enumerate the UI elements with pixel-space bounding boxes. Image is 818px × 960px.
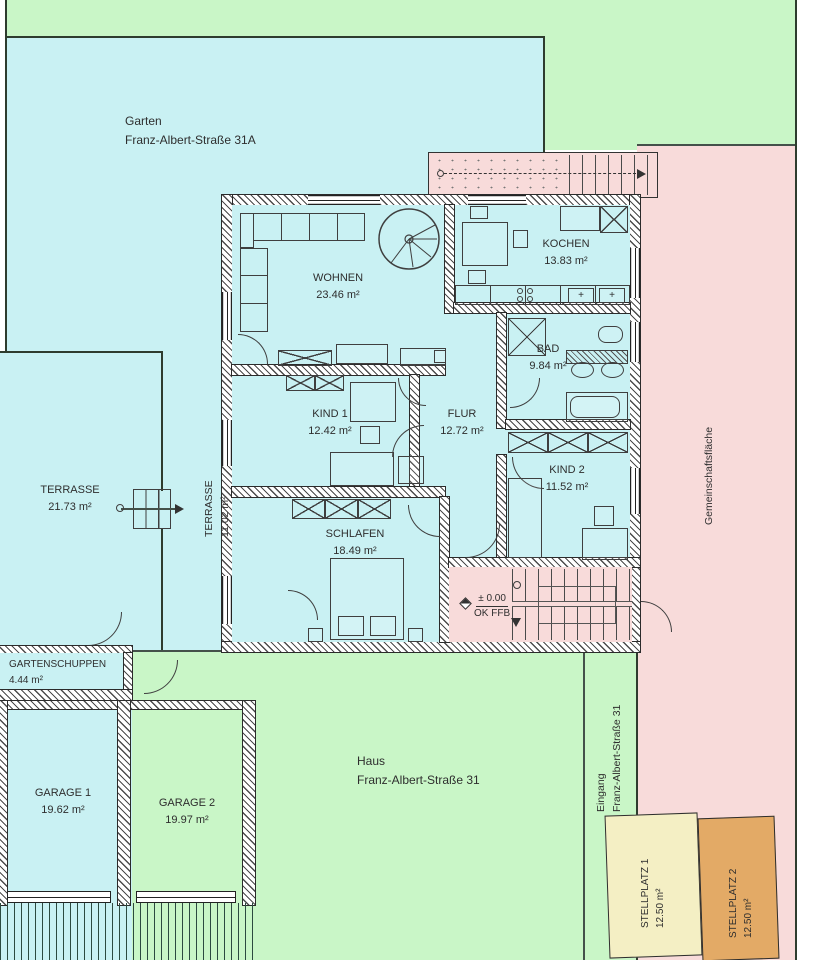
window bbox=[222, 576, 232, 624]
label-terrasse1: TERRASSE 21.73 m² bbox=[15, 482, 125, 516]
label-garten: Garten Franz-Albert-Straße 31A bbox=[125, 112, 256, 149]
boundary-line bbox=[637, 144, 795, 146]
label-garage1: GARAGE 1 19.62 m² bbox=[8, 785, 118, 819]
window bbox=[222, 292, 232, 340]
outbuilding-area: 19.97 m² bbox=[165, 814, 208, 826]
label-schlafen: SCHLAFEN 18.49 m² bbox=[300, 526, 410, 560]
wall-exterior-bottom bbox=[222, 642, 640, 652]
nightstand bbox=[308, 628, 323, 642]
level-annotation: ± 0.00 OK FFB bbox=[474, 592, 510, 620]
label-wohnen: WOHNEN 23.46 m² bbox=[283, 270, 393, 304]
room-area: 12.42 m² bbox=[308, 425, 351, 437]
level-value: ± 0.00 bbox=[476, 592, 508, 607]
window bbox=[308, 195, 380, 205]
outbuilding-name: STELLPLATZ 2 bbox=[728, 869, 739, 938]
wall-kind2-left bbox=[497, 455, 506, 567]
wall-wohnen-bottom bbox=[232, 365, 445, 375]
stove-burner bbox=[517, 288, 523, 294]
monitor bbox=[594, 506, 614, 526]
wall-garage-right bbox=[243, 701, 255, 905]
region-garten-a bbox=[5, 37, 545, 152]
room-name: KOCHEN bbox=[542, 238, 589, 250]
gemeinschaftsflaeche-text: Gemeinschaftsfläche bbox=[703, 427, 715, 525]
label-kind2: KIND 2 11.52 m² bbox=[512, 462, 622, 496]
level-reference: OK FFB bbox=[474, 608, 510, 619]
room-name: KIND 1 bbox=[312, 408, 347, 420]
terrace-stair-arrow bbox=[175, 504, 184, 514]
label-kochen: KOCHEN 13.83 m² bbox=[511, 236, 621, 270]
room-area: 18.49 m² bbox=[333, 545, 376, 557]
sofa-left bbox=[240, 248, 268, 332]
spiral-staircase-icon bbox=[377, 207, 441, 271]
label-flur: FLUR 12.72 m² bbox=[407, 406, 517, 440]
wardrobe bbox=[286, 375, 315, 391]
wardrobe bbox=[325, 499, 358, 519]
kitchen-sink: + bbox=[568, 288, 594, 303]
pantry-crossed bbox=[600, 206, 628, 233]
wall-schuppen-bottom bbox=[0, 690, 132, 701]
bed bbox=[330, 452, 394, 486]
room-name: FLUR bbox=[448, 408, 477, 420]
eingang-name: Eingang bbox=[595, 773, 607, 812]
haus-top-edge bbox=[132, 650, 222, 652]
room-name: KIND 2 bbox=[549, 464, 584, 476]
garage2-door bbox=[136, 891, 236, 903]
outbuilding-area: 12.50 m² bbox=[743, 899, 754, 938]
stair-direction-line bbox=[444, 173, 636, 174]
haus-address: Franz-Albert-Straße 31 bbox=[357, 773, 480, 787]
washbasin bbox=[601, 362, 624, 378]
kitchen-sink: + bbox=[599, 288, 625, 303]
entry-landing bbox=[428, 152, 658, 198]
terrace-outline bbox=[161, 528, 163, 652]
nightstand bbox=[408, 628, 423, 642]
label-gemeinschaftsflaeche: Gemeinschaftsfläche bbox=[702, 427, 718, 525]
sideboard-crossed bbox=[278, 350, 332, 366]
outbuilding-area: 4.44 m² bbox=[9, 675, 43, 686]
pillow bbox=[370, 616, 396, 636]
wall-schuppen-right bbox=[124, 653, 132, 690]
room-area: 12.72 m² bbox=[440, 425, 483, 437]
label-kind1: KIND 1 12.42 m² bbox=[275, 406, 385, 440]
room-name: WOHNEN bbox=[313, 272, 363, 284]
room-area: 13.83 m² bbox=[544, 255, 587, 267]
label-garage2: GARAGE 2 19.97 m² bbox=[132, 795, 242, 829]
boundary-line bbox=[795, 0, 797, 960]
pantry-cabinet bbox=[560, 206, 600, 231]
wall-wohnen-kochen bbox=[445, 205, 454, 313]
window bbox=[630, 248, 640, 298]
wardrobe bbox=[292, 499, 325, 519]
label-bad: BAD 9.84 m² bbox=[493, 341, 603, 375]
label-terrasse2: TERRASSE 11.02 m² bbox=[202, 480, 234, 537]
window bbox=[630, 468, 640, 514]
room-name: BAD bbox=[537, 343, 560, 355]
site-plan: ± 0.00 OK FFB + + bbox=[0, 0, 818, 960]
room-area: 21.73 m² bbox=[48, 501, 91, 513]
room-name: SCHLAFEN bbox=[326, 528, 385, 540]
pillow bbox=[338, 616, 364, 636]
room-area: 11.52 m² bbox=[546, 481, 589, 493]
haus-name: Haus bbox=[357, 754, 385, 768]
window bbox=[222, 420, 232, 466]
terrace-outline bbox=[0, 351, 162, 353]
stair-direction-arrow bbox=[637, 169, 646, 179]
outbuilding-name: GARTENSCHUPPEN bbox=[9, 659, 106, 670]
region-garten-c bbox=[5, 195, 222, 352]
landing-dots bbox=[433, 156, 563, 194]
desk bbox=[582, 528, 628, 560]
room-area: 9.84 m² bbox=[529, 360, 566, 372]
terrace-outline bbox=[161, 351, 163, 491]
stair-start-marker bbox=[513, 581, 521, 589]
stove-burner bbox=[527, 288, 533, 294]
garage1-door bbox=[7, 891, 111, 903]
wall-schuppen-top bbox=[0, 646, 132, 653]
region-garten-b bbox=[5, 152, 428, 195]
boundary-line bbox=[543, 37, 545, 152]
wall-schlafen-right bbox=[440, 497, 449, 642]
stair-down-arrow bbox=[511, 618, 521, 627]
garten-address: Franz-Albert-Straße 31A bbox=[125, 133, 256, 147]
sofa-corner bbox=[240, 213, 254, 248]
wall-garage-mid bbox=[118, 701, 130, 905]
stair-handrail bbox=[538, 586, 616, 624]
outbuilding-area: 19.62 m² bbox=[41, 804, 84, 816]
room-name: TERRASSE bbox=[203, 480, 215, 537]
label-gartenschuppen: GARTENSCHUPPEN 4.44 m² bbox=[9, 657, 106, 688]
chair bbox=[470, 206, 488, 219]
sideboard bbox=[336, 344, 388, 364]
bathtub-inner bbox=[570, 396, 620, 418]
room-area: 23.46 m² bbox=[316, 289, 359, 301]
label-stellplatz2: STELLPLATZ 2 12.50 m² bbox=[726, 869, 756, 938]
eingang-address: Franz-Albert-Straße 31 bbox=[611, 705, 623, 812]
stove-burner bbox=[527, 296, 533, 302]
eingang-divider bbox=[583, 652, 585, 960]
cabinet-small bbox=[434, 350, 446, 363]
side-table bbox=[398, 456, 424, 484]
room-name: TERRASSE bbox=[40, 484, 99, 496]
outbuilding-name: STELLPLATZ 1 bbox=[640, 859, 651, 928]
window bbox=[630, 322, 640, 362]
room-area: 11.02 m² bbox=[219, 496, 231, 537]
wall-kind1-bottom bbox=[232, 487, 445, 497]
wardrobe bbox=[358, 499, 391, 519]
outbuilding-name: GARAGE 1 bbox=[35, 787, 91, 799]
wall-exterior-top bbox=[222, 195, 640, 205]
chair bbox=[468, 270, 486, 284]
window bbox=[468, 195, 526, 205]
label-eingang: Eingang Franz-Albert-Straße 31 bbox=[594, 705, 626, 812]
dining-table bbox=[462, 222, 508, 266]
wall-garage-left bbox=[0, 701, 7, 905]
outbuilding-area: 12.50 m² bbox=[655, 889, 666, 928]
label-stellplatz1: STELLPLATZ 1 12.50 m² bbox=[638, 859, 668, 928]
boundary-line bbox=[5, 36, 545, 38]
terrace-stair-line bbox=[121, 508, 177, 510]
wardrobe bbox=[588, 432, 628, 453]
boundary-line bbox=[5, 0, 7, 352]
outbuilding-name: GARAGE 2 bbox=[159, 797, 215, 809]
stove-burner bbox=[517, 296, 523, 302]
stair-start-marker bbox=[437, 170, 444, 177]
garten-name: Garten bbox=[125, 114, 162, 128]
driveway-hatch bbox=[0, 903, 256, 960]
sofa-top bbox=[253, 213, 365, 241]
label-haus: Haus Franz-Albert-Straße 31 bbox=[357, 752, 480, 789]
wardrobe bbox=[548, 432, 588, 453]
wardrobe bbox=[315, 375, 344, 391]
